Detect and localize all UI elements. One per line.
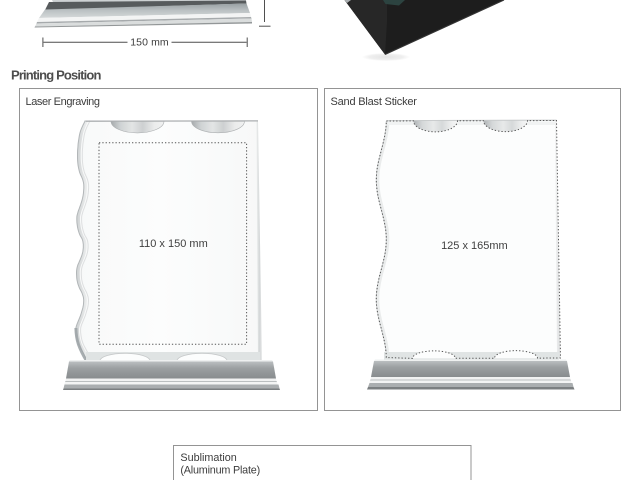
svg-text:Sand Blast Sticker: Sand Blast Sticker xyxy=(331,96,418,108)
svg-text:(Aluminum Plate): (Aluminum Plate) xyxy=(180,465,260,477)
svg-text:Printing Position: Printing Position xyxy=(11,68,101,83)
svg-text:125 x 165mm: 125 x 165mm xyxy=(441,240,508,252)
svg-text:150 mm: 150 mm xyxy=(130,37,169,49)
svg-text:Laser Engraving: Laser Engraving xyxy=(26,96,100,108)
svg-text:110 x 150 mm: 110 x 150 mm xyxy=(139,238,208,250)
svg-text:Sublimation: Sublimation xyxy=(180,452,236,464)
